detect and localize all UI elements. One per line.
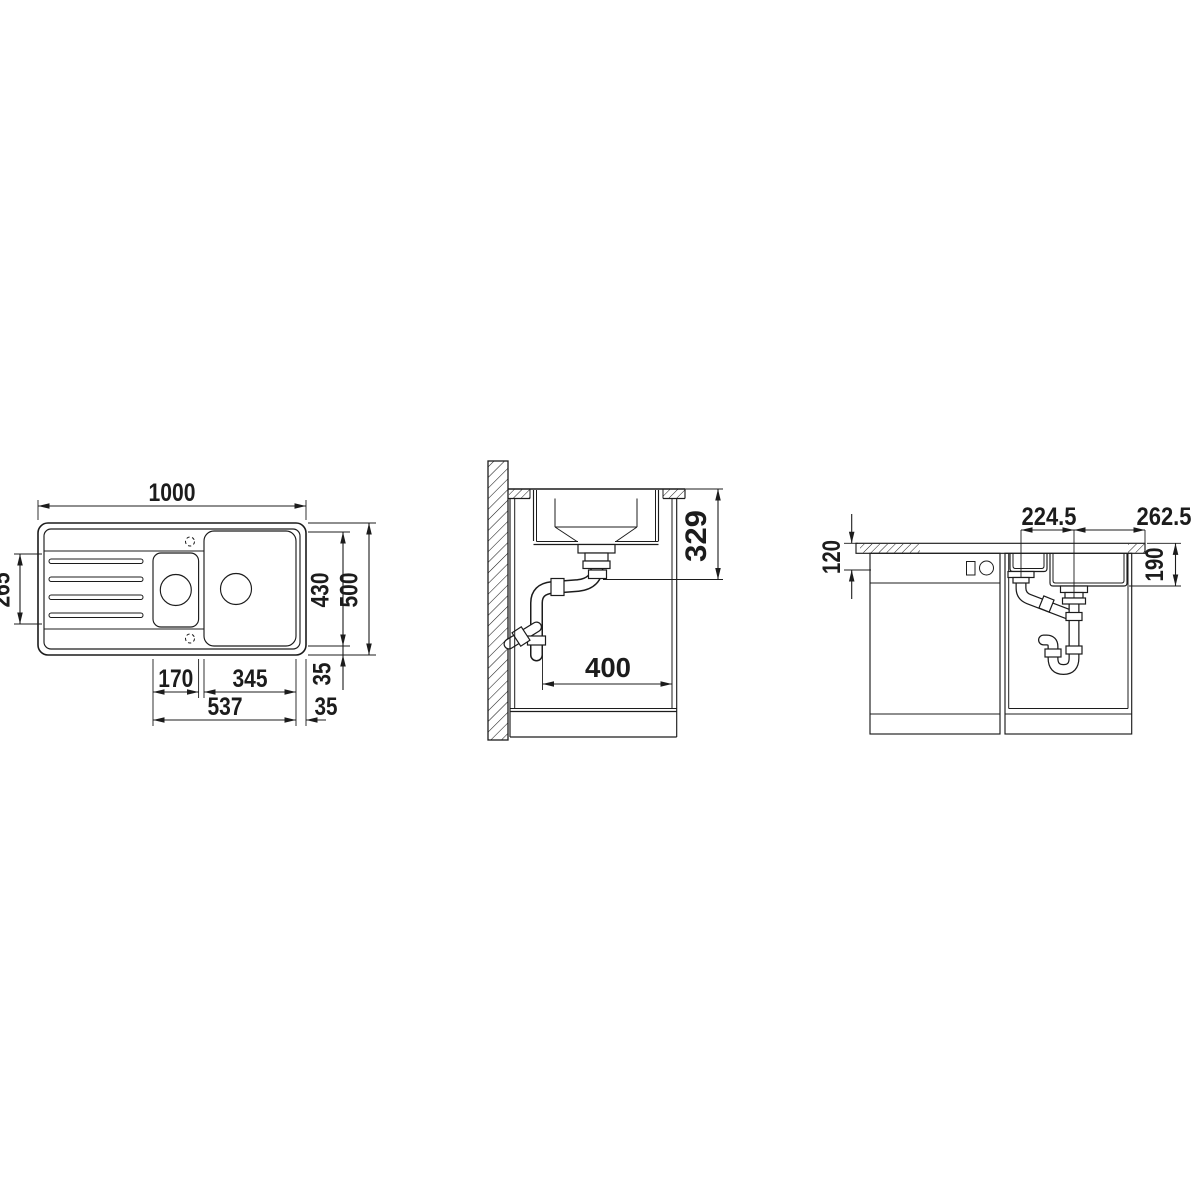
dim-35-back-label: 35 <box>309 662 337 685</box>
dim-170-label: 170 <box>158 665 193 693</box>
dim-190-label: 190 <box>1141 548 1169 582</box>
dim-224-5-label: 224.5 <box>1022 503 1077 531</box>
dim-500-label: 500 <box>336 573 364 608</box>
drain-flange <box>578 545 615 554</box>
dim-120-label: 120 <box>818 540 846 574</box>
dim-329-label: 329 <box>680 510 713 562</box>
dim-537-label: 537 <box>208 693 243 721</box>
dim-430-label: 430 <box>307 573 335 608</box>
dim-400-label: 400 <box>585 652 631 683</box>
drawing-canvas: 1000 265 430 500 35 17 <box>0 0 1200 1200</box>
dim-265-label: 265 <box>0 572 16 607</box>
dim-35-side-label: 35 <box>315 693 338 721</box>
dim-262-5-label: 262.5 <box>1137 503 1192 531</box>
technical-drawing: 1000 265 430 500 35 17 <box>0 0 1200 1200</box>
wall-section <box>488 461 508 740</box>
dim-345-label: 345 <box>233 665 268 693</box>
dim-1000-label: 1000 <box>149 479 196 507</box>
